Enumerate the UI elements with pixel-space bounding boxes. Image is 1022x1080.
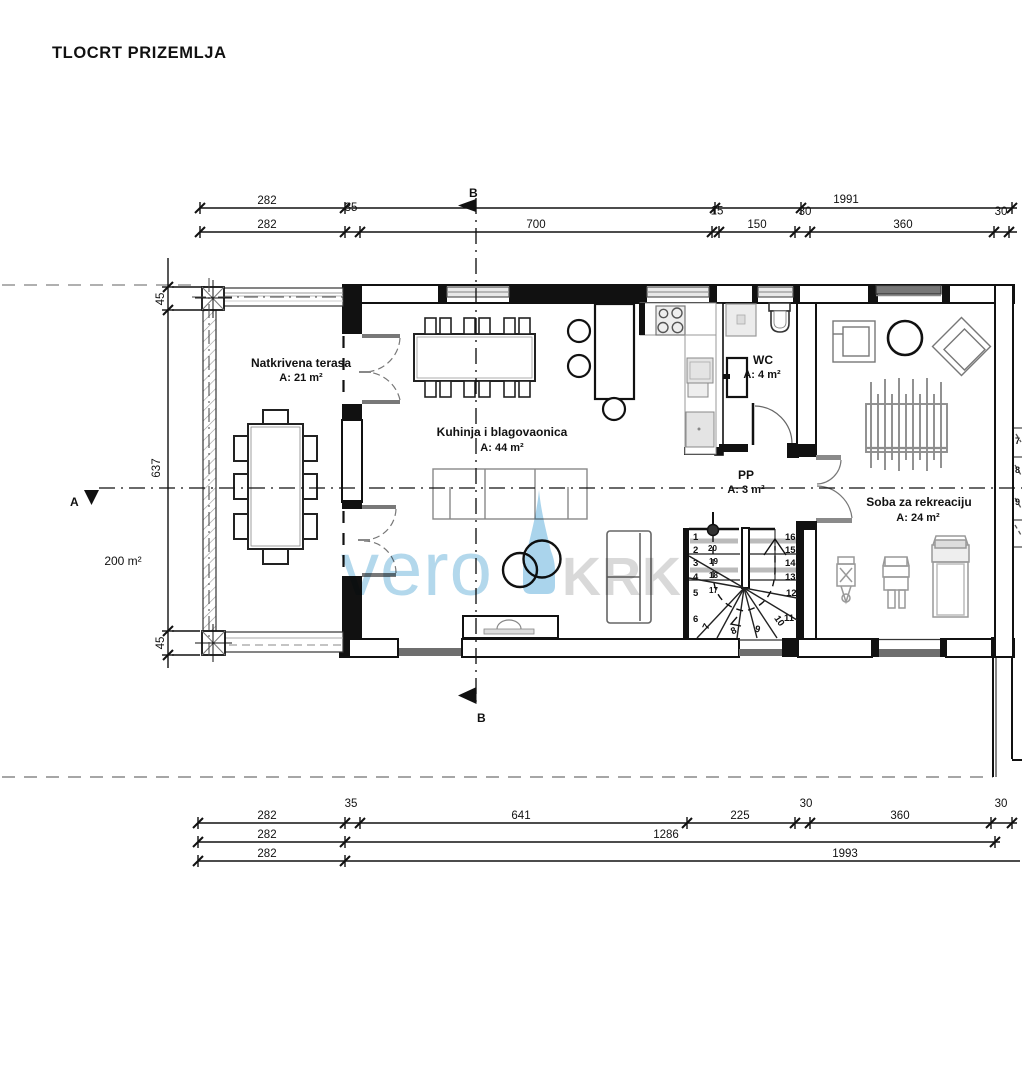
- svg-text:35: 35: [345, 202, 358, 214]
- svg-text:A: 4 m²: A: 4 m²: [743, 369, 781, 381]
- svg-text:5: 5: [693, 588, 699, 599]
- svg-text:282: 282: [257, 810, 276, 822]
- svg-text:18: 18: [709, 571, 718, 580]
- svg-text:12: 12: [786, 588, 797, 599]
- svg-text:15: 15: [711, 206, 724, 218]
- svg-text:4: 4: [693, 572, 699, 583]
- svg-text:30: 30: [995, 798, 1008, 810]
- svg-text:641: 641: [511, 810, 530, 822]
- svg-text:30: 30: [799, 206, 812, 218]
- svg-text:8: 8: [1015, 465, 1020, 475]
- svg-text:3: 3: [693, 558, 698, 569]
- svg-text:TLOCRT PRIZEMLJA: TLOCRT PRIZEMLJA: [52, 44, 227, 62]
- svg-text:A: 21 m²: A: 21 m²: [279, 372, 323, 384]
- svg-text:Natkrivena terasa: Natkrivena terasa: [251, 356, 351, 370]
- svg-text:637: 637: [151, 458, 163, 477]
- svg-text:9: 9: [1015, 497, 1020, 507]
- svg-text:1991: 1991: [833, 194, 859, 206]
- svg-text:1286: 1286: [653, 829, 679, 841]
- svg-text:17: 17: [709, 586, 718, 595]
- svg-text:45: 45: [155, 293, 167, 306]
- svg-text:KRK: KRK: [562, 547, 682, 607]
- svg-text:15: 15: [785, 545, 796, 556]
- svg-text:14: 14: [785, 558, 796, 569]
- svg-text:200 m²: 200 m²: [104, 554, 141, 568]
- svg-text:13: 13: [785, 572, 796, 583]
- svg-text:Kuhinja i blagovaonica: Kuhinja i blagovaonica: [437, 425, 568, 439]
- svg-text:19: 19: [709, 557, 718, 566]
- svg-text:PP: PP: [738, 468, 754, 482]
- svg-text:282: 282: [257, 848, 276, 860]
- svg-text:700: 700: [526, 219, 545, 231]
- svg-text:35: 35: [345, 798, 358, 810]
- svg-text:150: 150: [747, 219, 766, 231]
- svg-text:A: 44 m²: A: 44 m²: [480, 442, 524, 454]
- svg-text:1993: 1993: [832, 848, 858, 860]
- svg-text:A: A: [70, 495, 79, 509]
- svg-text:30: 30: [995, 206, 1008, 218]
- svg-text:B: B: [477, 711, 486, 725]
- svg-text:A: 24 m²: A: 24 m²: [896, 512, 940, 524]
- svg-text:282: 282: [257, 219, 276, 231]
- svg-text:282: 282: [257, 829, 276, 841]
- svg-text:6: 6: [693, 614, 698, 625]
- svg-text:225: 225: [730, 810, 749, 822]
- svg-text:B: B: [469, 186, 478, 200]
- svg-text:16: 16: [785, 532, 796, 543]
- svg-text:1: 1: [693, 532, 699, 543]
- svg-text:360: 360: [893, 219, 912, 231]
- svg-text:A: 3 m²: A: 3 m²: [727, 484, 765, 496]
- svg-text:2: 2: [693, 545, 698, 556]
- svg-text:360: 360: [890, 810, 909, 822]
- svg-text:20: 20: [708, 544, 717, 553]
- svg-text:vero: vero: [341, 527, 493, 612]
- svg-text:282: 282: [257, 195, 276, 207]
- svg-text:7: 7: [1015, 436, 1020, 446]
- svg-text:Soba za rekreaciju: Soba za rekreaciju: [866, 495, 971, 509]
- svg-text:45: 45: [155, 637, 167, 650]
- svg-text:30: 30: [800, 798, 813, 810]
- svg-text:WC: WC: [753, 353, 773, 367]
